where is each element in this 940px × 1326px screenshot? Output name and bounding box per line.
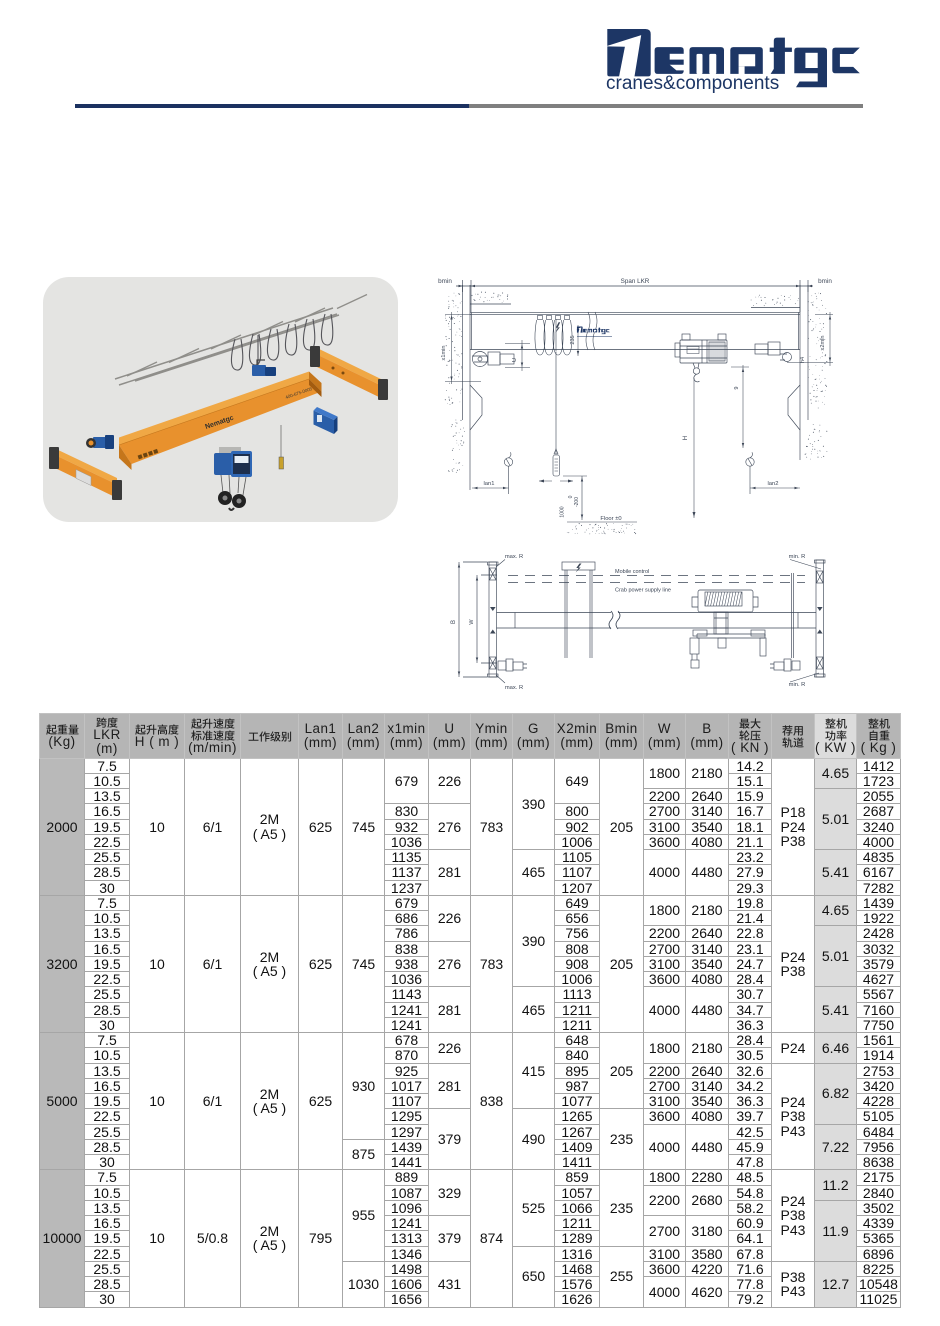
svg-text:9: 9 <box>734 386 740 389</box>
svg-text:1000: 1000 <box>560 506 566 517</box>
svg-text:B: B <box>451 620 457 624</box>
svg-text:h4: h4 <box>800 357 806 363</box>
svg-text:Span LKR: Span LKR <box>621 278 650 285</box>
svg-text:235: 235 <box>570 335 576 344</box>
svg-text:x1min: x1min <box>441 346 447 361</box>
svg-text:bmin: bmin <box>818 278 832 285</box>
svg-text:U: U <box>512 358 518 362</box>
svg-text:min. R: min. R <box>789 554 806 560</box>
svg-text:-200: -200 <box>574 497 580 507</box>
svg-text:Crab power supply line: Crab power supply line <box>615 588 671 594</box>
svg-text:Floor ±0: Floor ±0 <box>600 516 621 522</box>
svg-text:max. R: max. R <box>505 554 523 560</box>
svg-text:min. R: min. R <box>789 682 806 688</box>
svg-text:lan2: lan2 <box>768 481 779 487</box>
svg-text:x2min: x2min <box>820 336 826 351</box>
svg-text:bmin: bmin <box>438 278 452 285</box>
svg-text:W: W <box>469 619 475 625</box>
svg-text:Mobile control: Mobile control <box>615 569 649 575</box>
svg-text:H: H <box>682 435 689 440</box>
svg-text:max. R: max. R <box>505 685 523 691</box>
svg-text:lan1: lan1 <box>484 481 495 487</box>
